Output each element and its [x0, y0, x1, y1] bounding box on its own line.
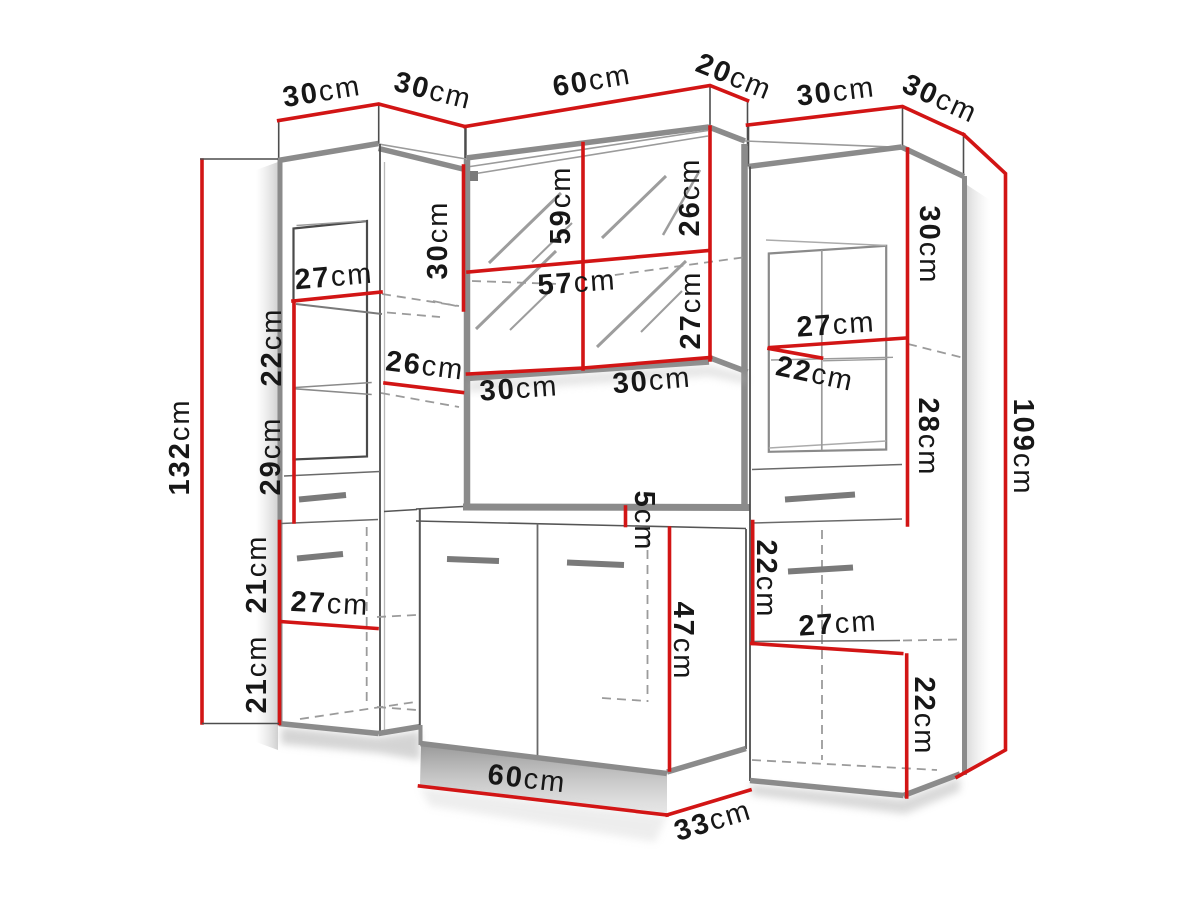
svg-text:28cm: 28cm: [912, 398, 944, 477]
svg-text:27cm: 27cm: [796, 306, 877, 343]
svg-text:27cm: 27cm: [290, 586, 371, 622]
svg-text:30cm: 30cm: [479, 370, 560, 407]
svg-text:21cm: 21cm: [241, 635, 273, 714]
svg-text:109cm: 109cm: [1007, 398, 1039, 495]
svg-text:27cm: 27cm: [798, 605, 879, 642]
svg-text:57cm: 57cm: [537, 264, 618, 301]
svg-text:132cm: 132cm: [164, 398, 196, 495]
svg-text:21cm: 21cm: [241, 535, 273, 614]
svg-text:22cm: 22cm: [908, 677, 940, 756]
svg-text:30cm: 30cm: [611, 362, 692, 401]
svg-text:22cm: 22cm: [750, 540, 782, 619]
svg-text:27cm: 27cm: [293, 258, 374, 297]
svg-text:26cm: 26cm: [674, 158, 706, 237]
svg-text:30cm: 30cm: [913, 206, 945, 285]
svg-text:5cm: 5cm: [628, 491, 660, 552]
svg-text:59cm: 59cm: [545, 166, 577, 245]
svg-text:29cm: 29cm: [255, 417, 287, 496]
svg-text:47cm: 47cm: [667, 602, 699, 681]
svg-text:22cm: 22cm: [256, 308, 288, 387]
svg-text:27cm: 27cm: [675, 271, 707, 350]
svg-text:30cm: 30cm: [422, 201, 454, 280]
